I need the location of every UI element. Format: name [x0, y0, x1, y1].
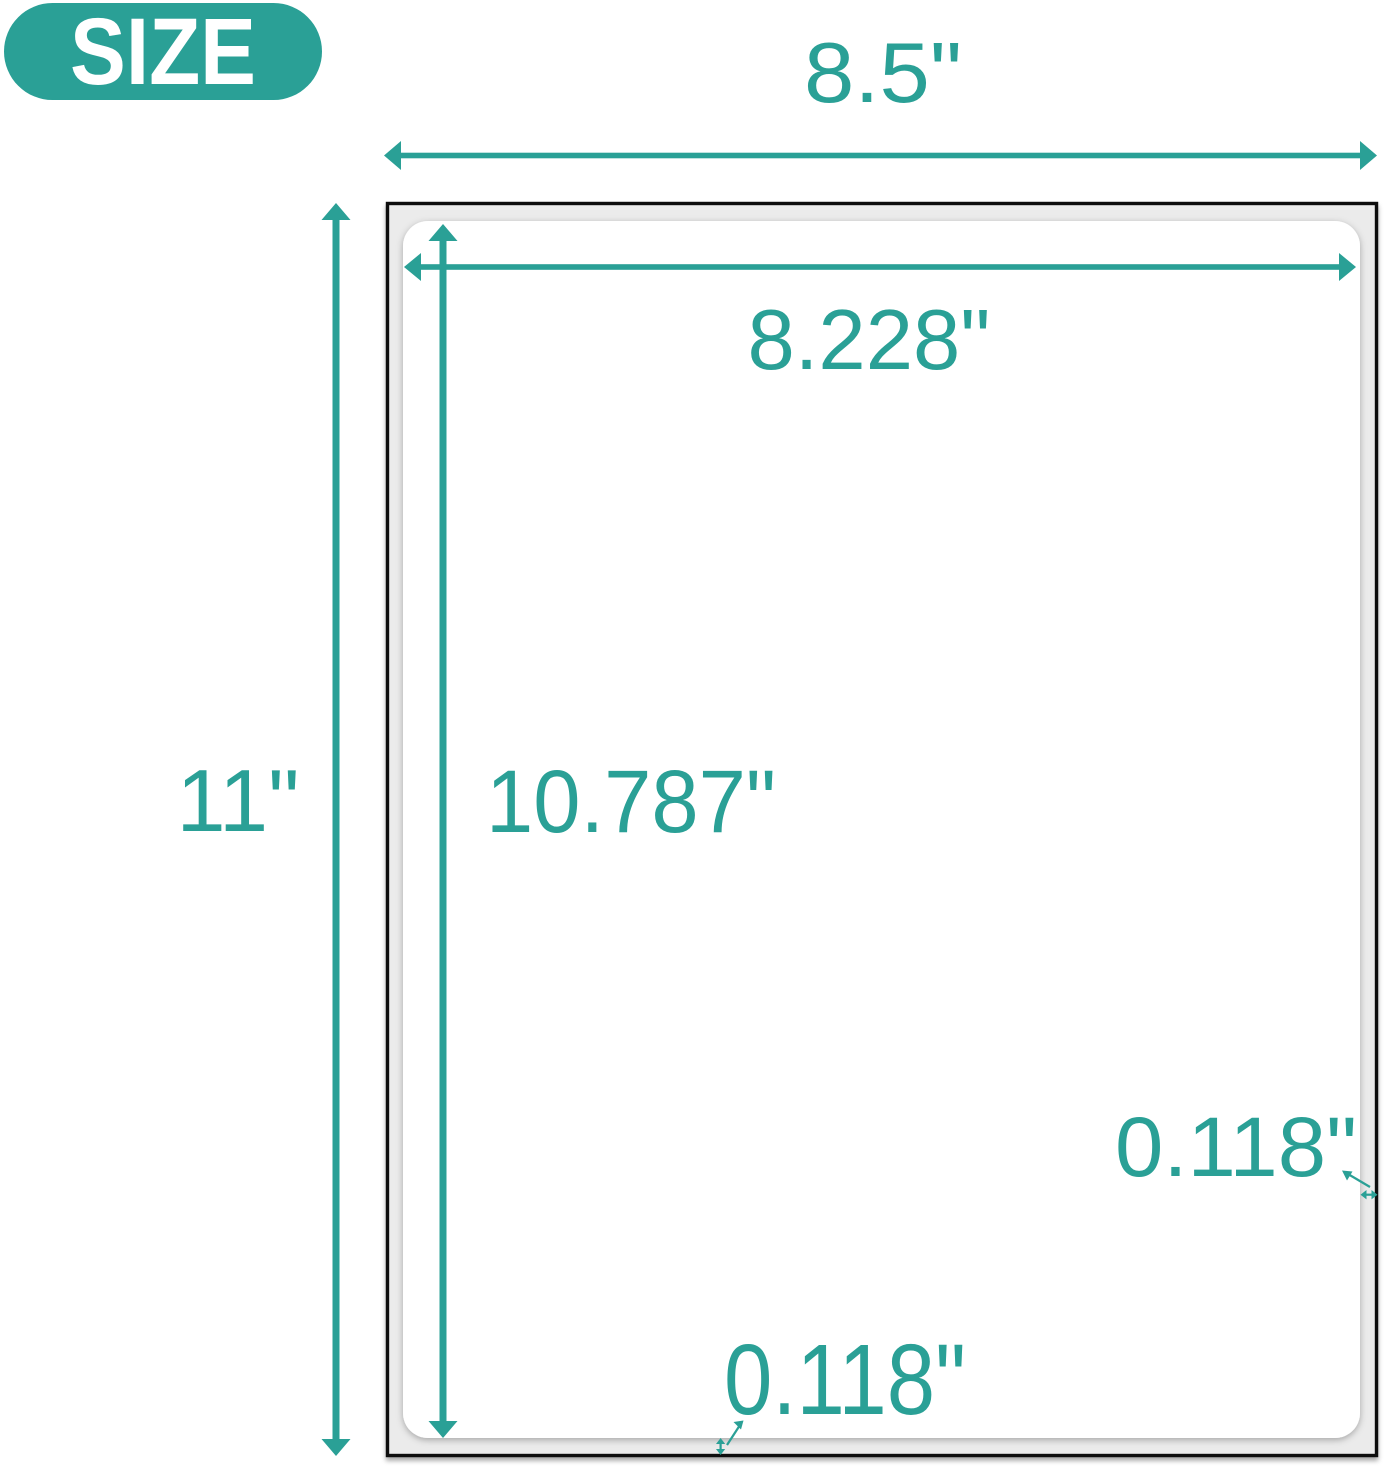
svg-text:8.228": 8.228" — [748, 293, 991, 388]
svg-text:0.118": 0.118" — [724, 1324, 966, 1436]
svg-text:11": 11" — [177, 751, 300, 850]
svg-text:SIZE: SIZE — [70, 0, 256, 105]
svg-text:8.5": 8.5" — [804, 26, 962, 121]
svg-text:10.787": 10.787" — [486, 751, 776, 851]
svg-text:0.118": 0.118" — [1115, 1100, 1357, 1194]
